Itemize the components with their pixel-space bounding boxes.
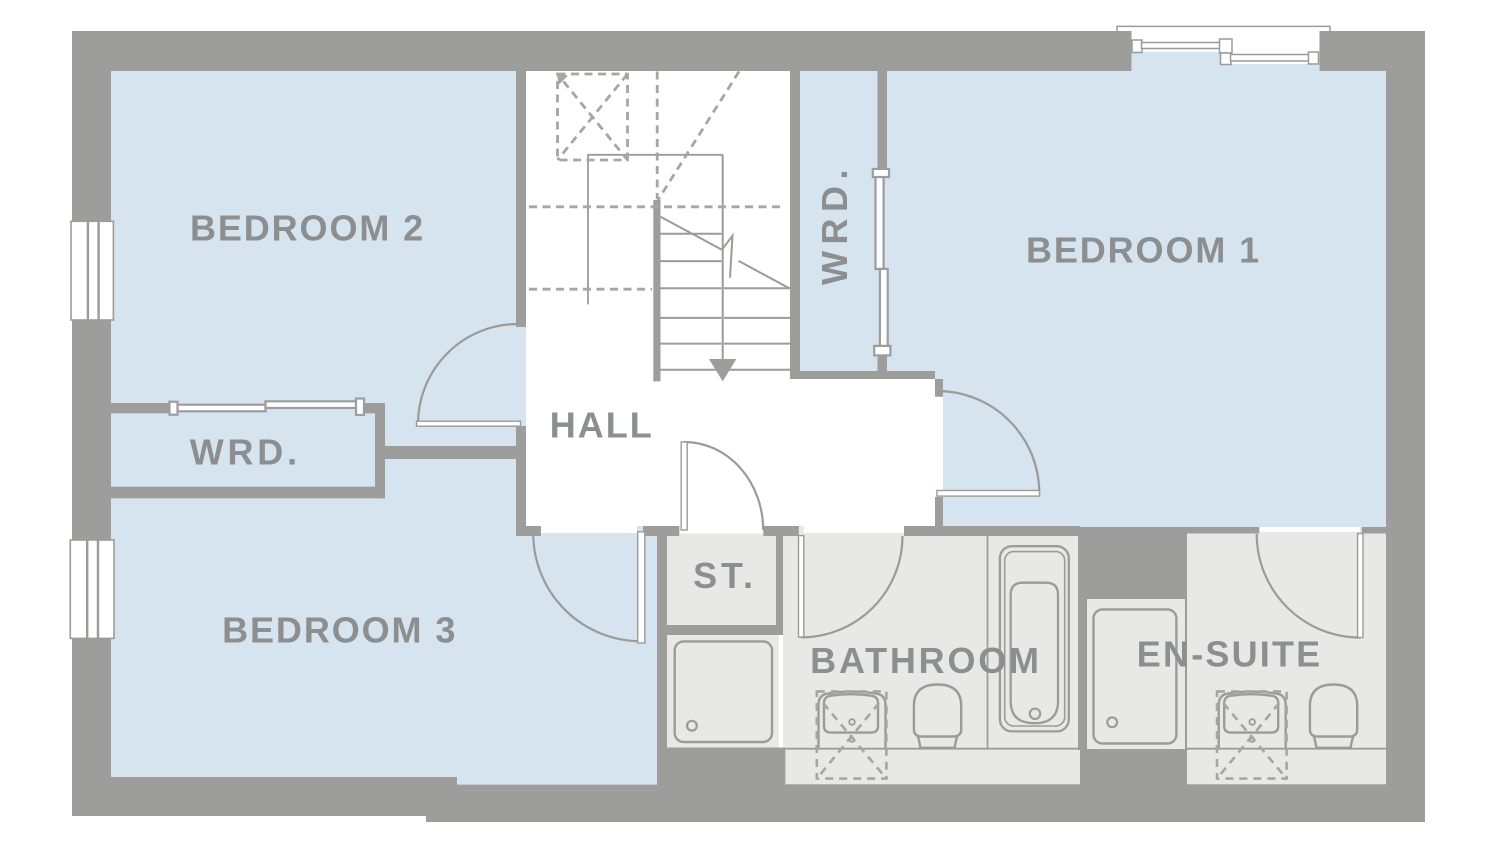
svg-text:BATHROOM: BATHROOM	[810, 640, 1042, 681]
svg-text:HALL: HALL	[550, 405, 654, 446]
svg-text:WRD.: WRD.	[190, 432, 301, 473]
svg-text:BEDROOM 3: BEDROOM 3	[222, 610, 457, 651]
svg-text:WRD.: WRD.	[814, 163, 855, 285]
svg-text:ST.: ST.	[693, 555, 757, 596]
svg-text:BEDROOM 2: BEDROOM 2	[190, 207, 425, 248]
svg-text:BEDROOM 1: BEDROOM 1	[1026, 230, 1261, 271]
svg-text:EN-SUITE: EN-SUITE	[1137, 634, 1323, 675]
